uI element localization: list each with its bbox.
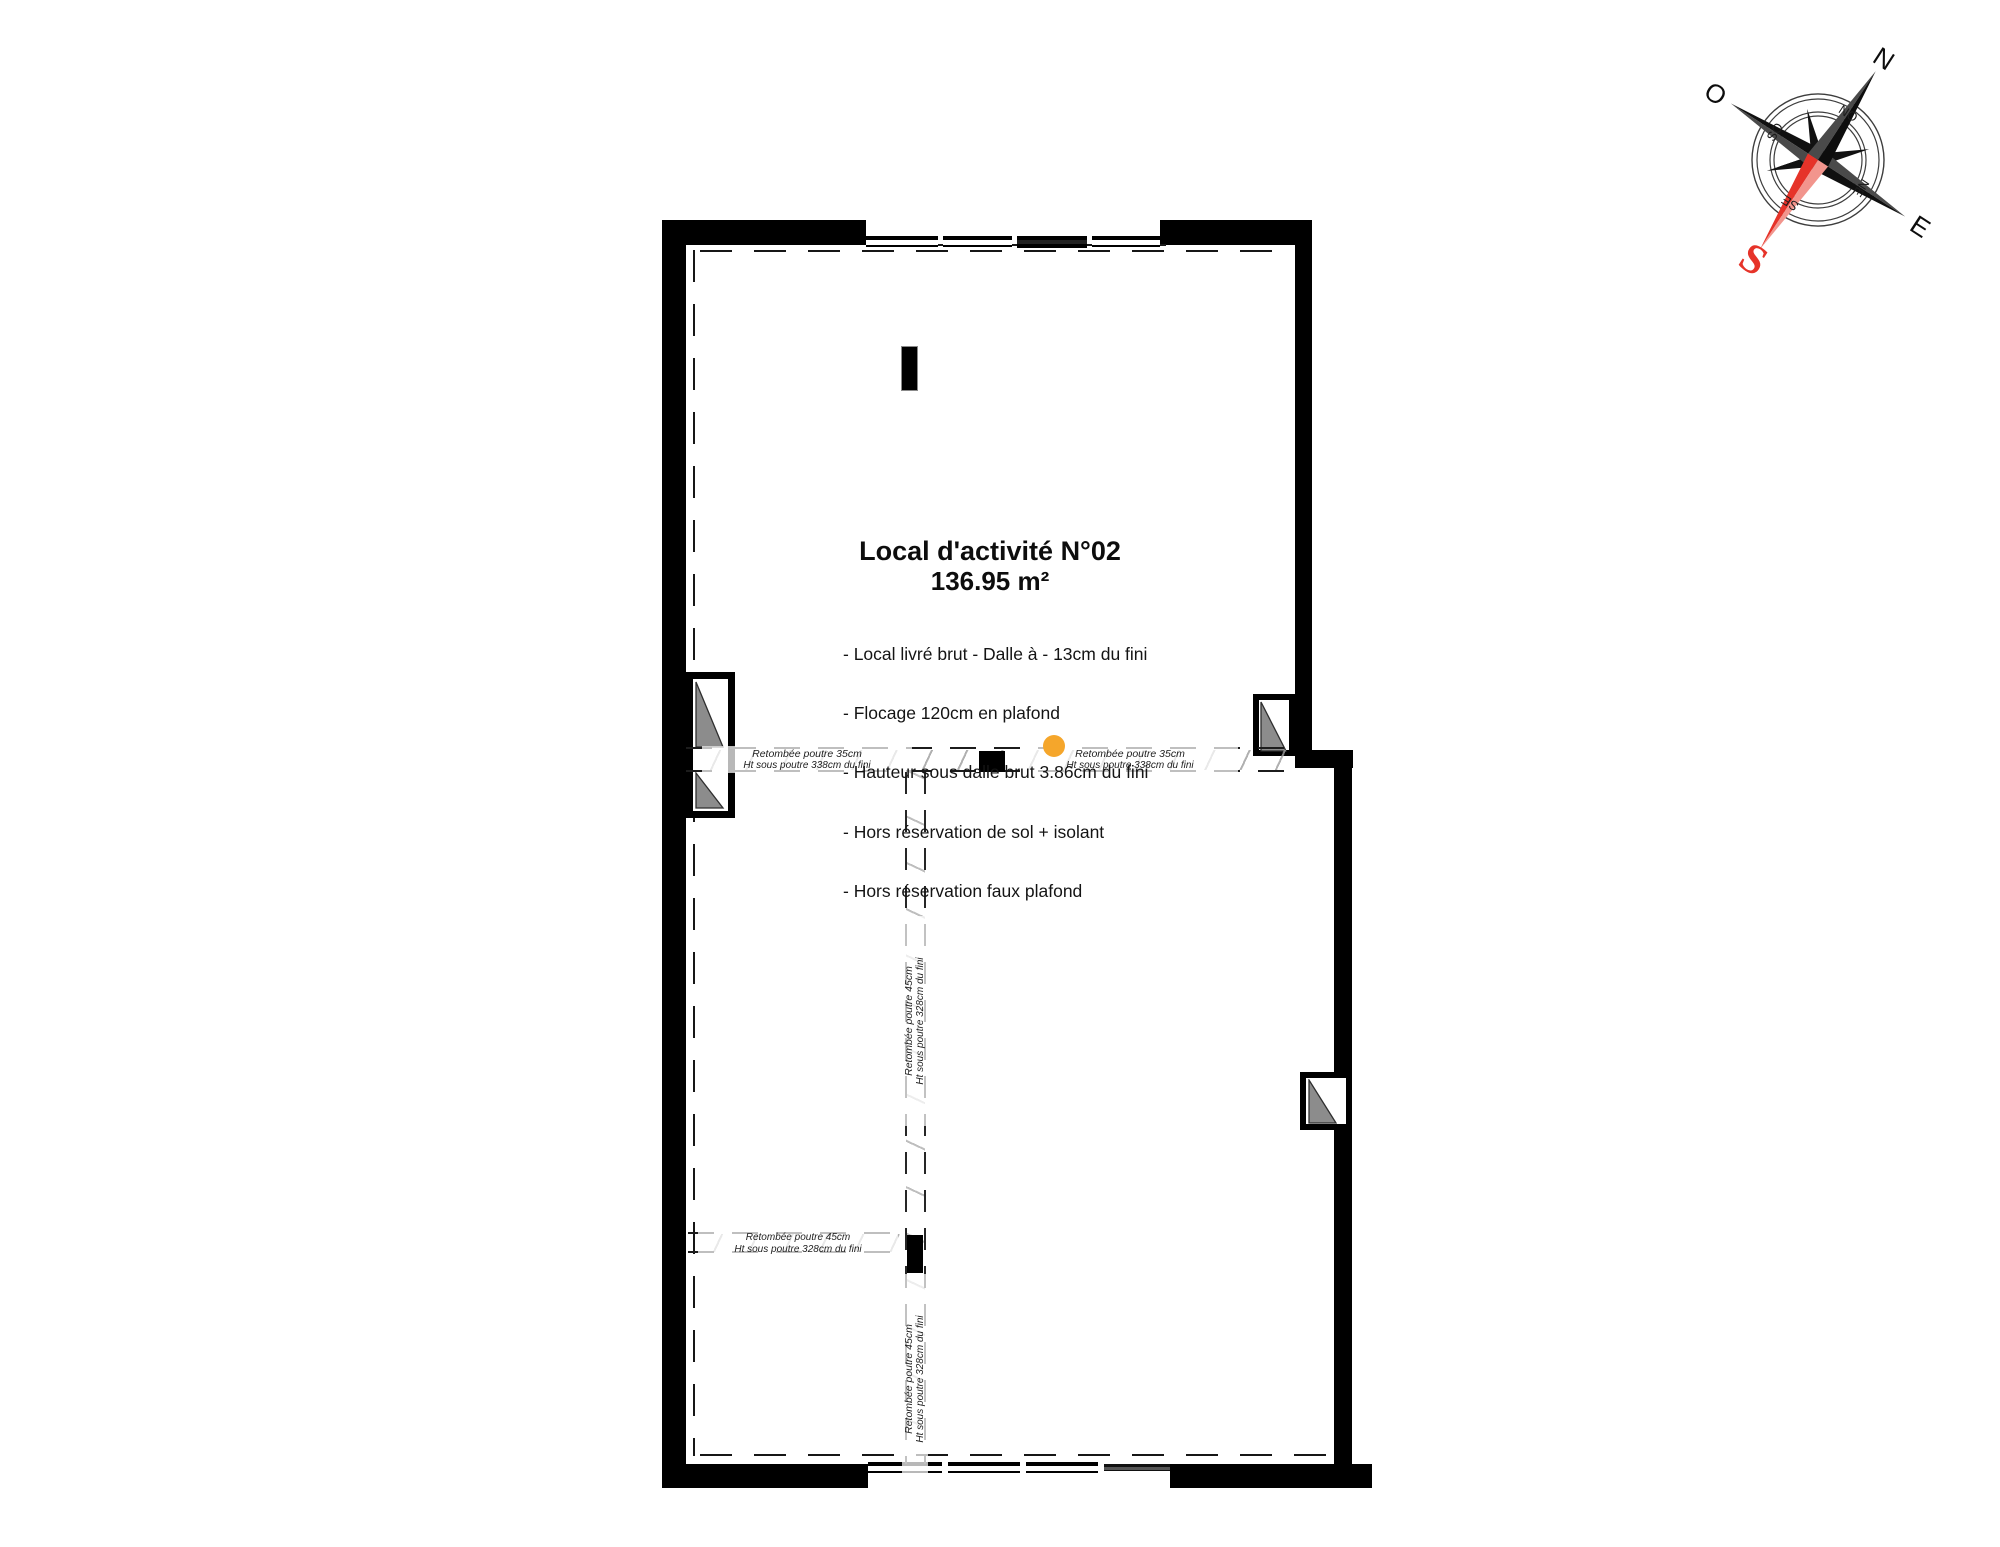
compass-letter-s: S [1731,234,1776,285]
beam-45-vlabel-upper-line1: Retombée poutre 45cm [903,966,915,1076]
beam-45-label-vertical-lower: Retombée poutre 45cm Ht sous poutre 328c… [902,1274,928,1484]
spec-line-4: - Hors réservation de sol + isolant [843,823,1173,843]
right-upper-glass-triangle [1260,701,1288,753]
wall-top-left [662,220,866,245]
room-specs-list: - Local livré brut - Dalle à - 13cm du f… [843,605,1173,942]
beam-45-vlabel-lower-line1: Retombée poutre 45cm [903,1324,915,1434]
left-opening-glass-triangle-lower [695,772,725,810]
left-opening-glass-triangle-upper [695,681,725,749]
compass-letter-o: O [1699,75,1732,111]
beam-45-vlabel-lower-line2: Ht sous poutre 328cm du fini [915,1315,927,1442]
compass-letter-n: N [1868,41,1900,76]
witness-line-top [700,250,1292,252]
wall-step [1295,750,1353,768]
spec-line-1: - Local livré brut - Dalle à - 13cm du f… [843,645,1173,665]
window-top-3 [1017,236,1087,248]
window-top-2 [943,236,1012,247]
compass-letter-e: E [1905,209,1936,244]
window-bottom-2 [948,1462,1020,1473]
window-top-4 [1092,236,1160,247]
beam-45-label-horizontal: Retombée poutre 45cm Ht sous poutre 328c… [698,1231,898,1257]
right-lower-glass-triangle [1308,1079,1338,1125]
room-area: 136.95 m² [740,566,1240,596]
witness-line-bottom [700,1454,1334,1456]
beam-45-vlabel-upper-line2: Ht sous poutre 328cm du fini [915,957,927,1084]
wall-right-upper [1295,220,1312,768]
room-title: Local d'activité N°02 [740,536,1240,566]
spec-line-2: - Flocage 120cm en plafond [843,704,1173,724]
wall-left [662,220,686,1488]
wall-bottom-right [1170,1464,1372,1488]
spec-line-5: - Hors réservation faux plafond [843,882,1173,902]
column-lower-room [907,1235,923,1273]
floor-plan-sheet: NO NE SE SO N E O S [0,0,2000,1547]
wall-top-right [1160,220,1312,245]
window-bottom-4 [1104,1464,1170,1471]
beam-45-hlabel-line2: Ht sous poutre 328cm du fini [734,1244,861,1256]
beam-45-label-vertical-upper: Retombée poutre 45cm Ht sous poutre 328c… [902,916,928,1126]
beam-45-hlabel-line1: Retombée poutre 45cm [746,1232,851,1244]
window-top-1 [866,236,938,247]
window-bottom-3 [1026,1462,1098,1473]
room-title-block: Local d'activité N°02 136.95 m² [740,536,1240,596]
spec-line-3: - Hauteur sous dalle brut 3.86cm du fini [843,763,1173,783]
column-upper-room [902,347,917,390]
compass-rose: NO NE SE SO N E O S [1688,30,1948,290]
witness-line-left [693,250,695,1456]
wall-bottom-left [662,1464,868,1488]
